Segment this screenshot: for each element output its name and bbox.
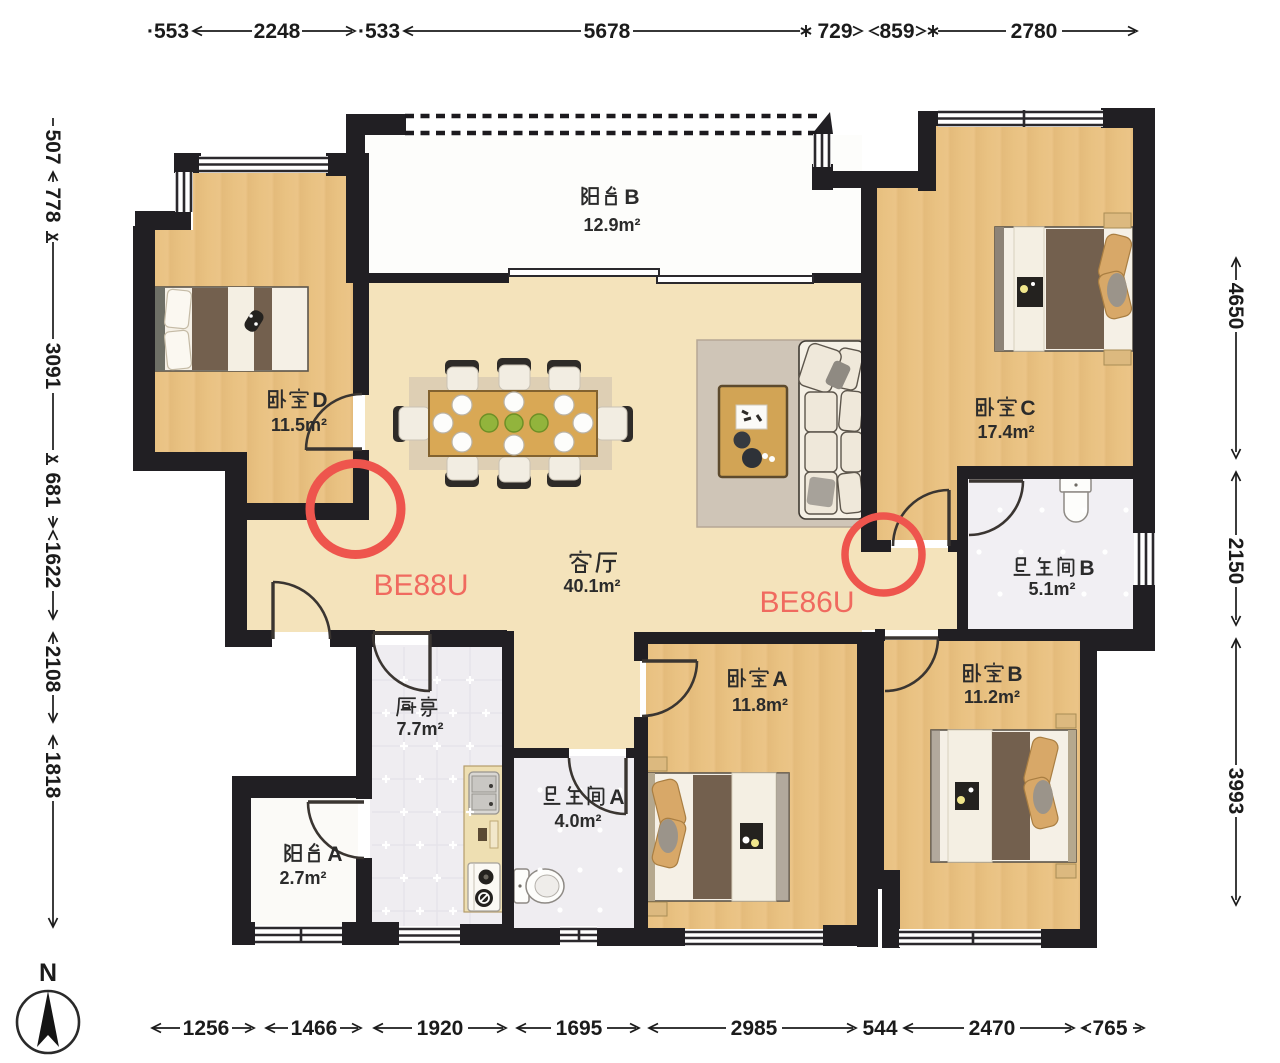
svg-text:2470: 2470 [969,1017,1016,1040]
svg-text:17.4m²: 17.4m² [977,422,1034,442]
svg-text:778: 778 [41,187,64,222]
svg-text:11.5m²: 11.5m² [271,415,327,435]
svg-text:N: N [39,959,57,987]
svg-text:5.1m²: 5.1m² [1028,579,1075,599]
svg-text:·533: ·533 [358,20,400,43]
svg-text:681: 681 [41,472,64,507]
svg-text:1466: 1466 [291,1017,338,1040]
svg-text:B: B [624,186,639,209]
svg-text:11.2m²: 11.2m² [964,687,1020,707]
svg-text:2780: 2780 [1011,20,1058,43]
svg-text:B: B [1079,557,1094,580]
svg-text:2108: 2108 [41,646,64,693]
svg-text:1622: 1622 [41,542,64,589]
svg-text:2985: 2985 [731,1017,778,1040]
svg-text:1920: 1920 [417,1017,464,1040]
svg-text:2150: 2150 [1224,538,1247,585]
svg-text:3993: 3993 [1224,768,1247,815]
svg-text:B: B [1007,663,1022,686]
svg-text:859: 859 [879,20,914,43]
svg-text:BE88U: BE88U [373,569,468,602]
svg-text:A: A [772,668,787,691]
svg-text:729: 729 [817,20,852,43]
svg-text:·553: ·553 [147,20,189,43]
svg-text:765: 765 [1092,1017,1127,1040]
svg-text:1256: 1256 [183,1017,230,1040]
svg-text:4650: 4650 [1224,283,1247,330]
svg-text:BE86U: BE86U [759,586,854,619]
svg-text:544: 544 [862,1017,897,1040]
svg-text:D: D [312,389,327,412]
svg-text:11.8m²: 11.8m² [732,695,788,715]
svg-text:1818: 1818 [41,752,64,799]
svg-text:1695: 1695 [556,1017,603,1040]
svg-text:C: C [1020,397,1035,420]
svg-text:A: A [327,843,342,866]
svg-text:2248: 2248 [254,20,301,43]
svg-text:12.9m²: 12.9m² [583,215,640,235]
svg-text:507: 507 [41,129,64,164]
svg-text:A: A [609,786,624,809]
svg-text:4.0m²: 4.0m² [554,811,601,831]
svg-text:40.1m²: 40.1m² [563,576,620,596]
svg-text:2.7m²: 2.7m² [279,868,326,888]
svg-text:7.7m²: 7.7m² [396,719,443,739]
svg-text:3091: 3091 [41,343,64,390]
svg-text:5678: 5678 [584,20,631,43]
